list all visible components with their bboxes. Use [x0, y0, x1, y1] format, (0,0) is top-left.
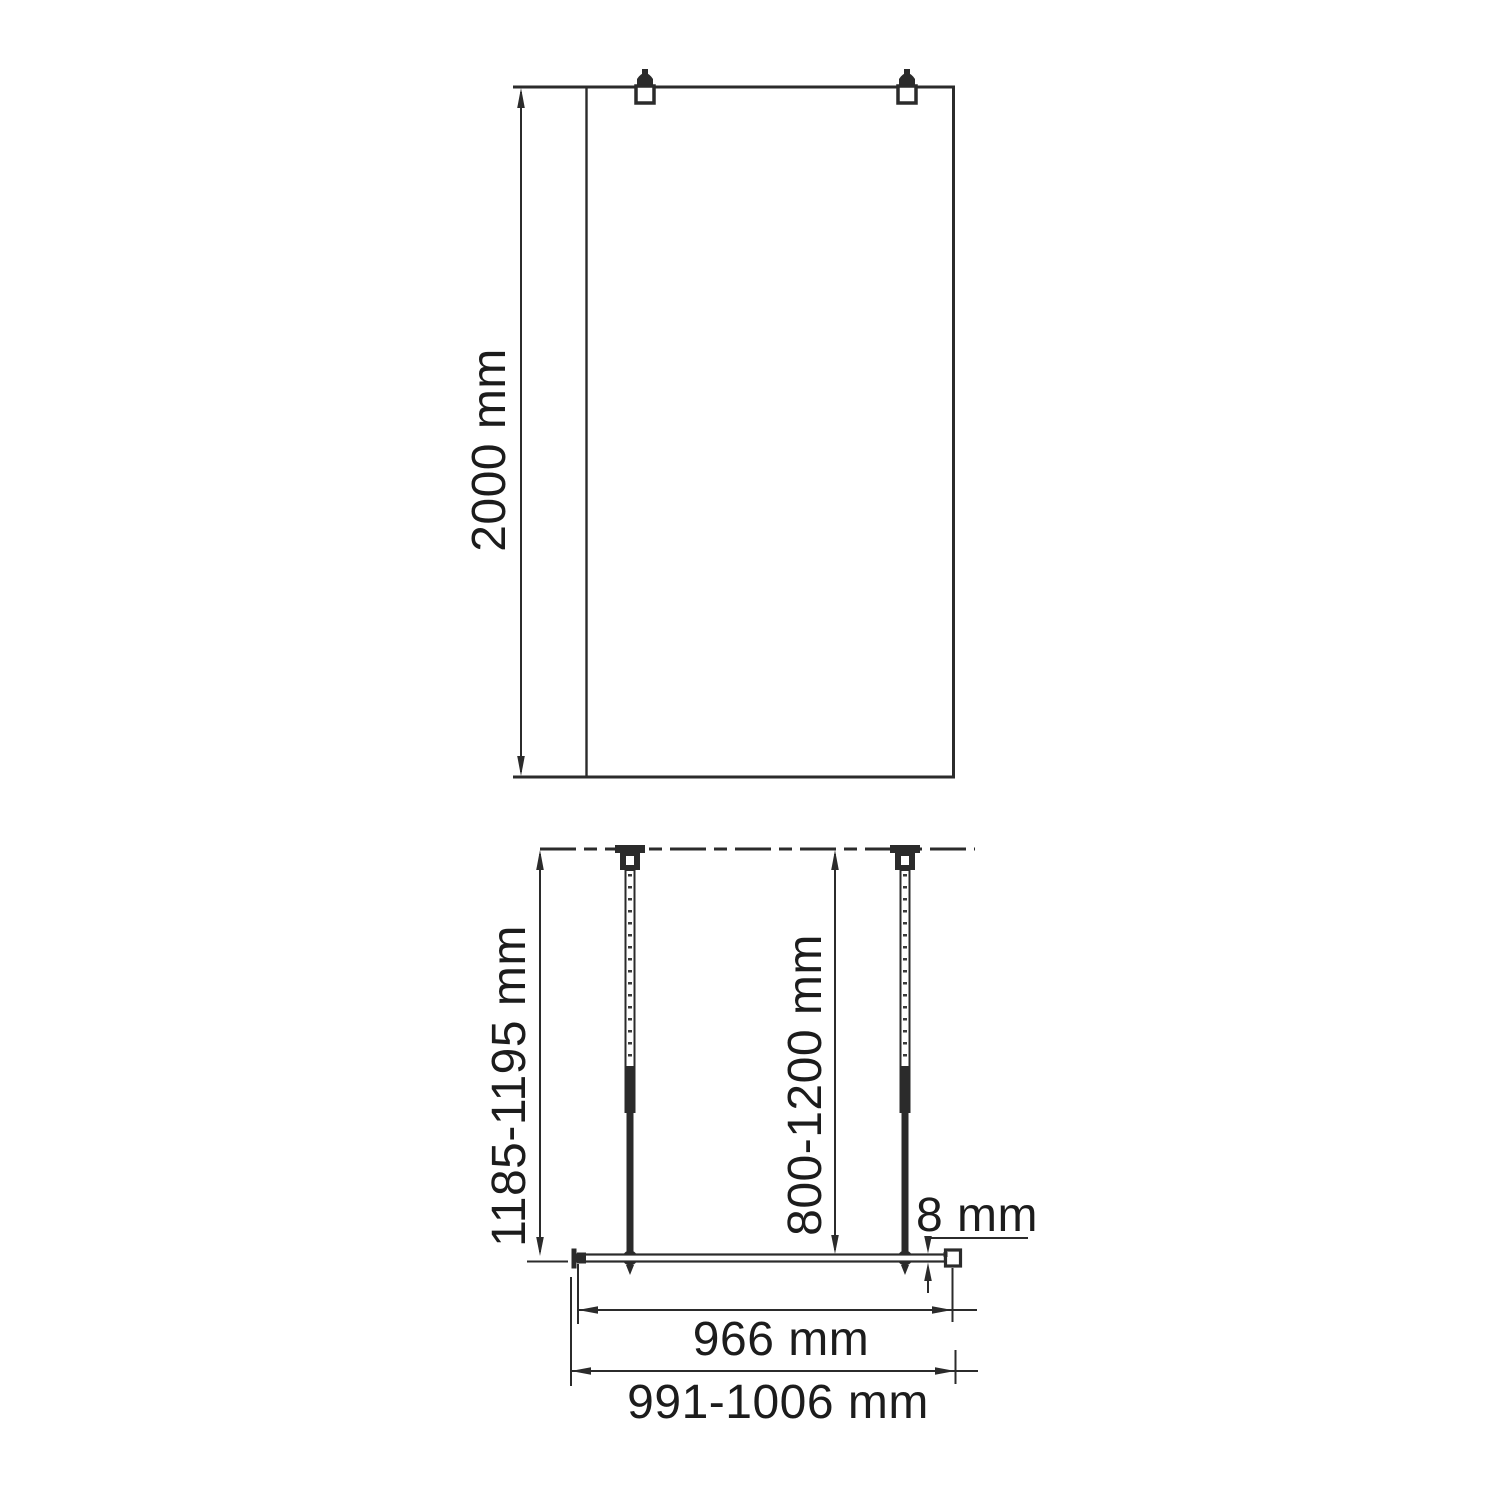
bar-mount-range-dimension: 800-1200 mm — [779, 850, 839, 1254]
bar-wall-flange — [615, 845, 645, 853]
technical-drawing-canvas: 2000 mm — [0, 0, 1500, 1500]
wall-profile-left — [572, 1249, 577, 1269]
dimension-arrow-down — [517, 756, 525, 776]
overall-width-label: 991-1006 mm — [627, 1376, 929, 1429]
bar-length-dimension: 1185-1195 mm — [483, 850, 568, 1262]
glass-clamp-left — [636, 69, 654, 103]
clamp-dome — [637, 73, 653, 86]
dimension-arrow-up — [831, 850, 839, 870]
dimension-arrow-right — [932, 1306, 952, 1314]
bar-wall-hole — [626, 856, 634, 865]
clamp-plate — [636, 86, 654, 103]
support-bar-left — [615, 845, 645, 1275]
dimension-arrow-left — [571, 1367, 591, 1375]
clamp-nub — [642, 69, 648, 74]
bar-sleeve — [900, 1066, 911, 1113]
dimension-arrow-down — [536, 1237, 544, 1256]
bar-connector-tip — [901, 1265, 909, 1275]
bar-rod — [627, 1113, 634, 1253]
bar-connector-tip — [626, 1265, 634, 1275]
front-height-label: 2000 mm — [463, 348, 516, 552]
bar-wall-flange — [890, 845, 920, 853]
glass-left-seal — [577, 1253, 586, 1264]
bar-wall-hole — [901, 856, 909, 865]
glass-right-seal — [944, 1252, 948, 1257]
overall-width-dimension: 991-1006 mm — [571, 1367, 978, 1429]
bar-length-label: 1185-1195 mm — [483, 925, 536, 1247]
glass-width-label: 966 mm — [693, 1313, 869, 1366]
wall-profile-right — [946, 1250, 961, 1266]
dimension-arrow-left — [578, 1306, 598, 1314]
glass-thickness-callout: 8 mm — [916, 1189, 1038, 1293]
shower-screen-dimension-diagram: 2000 mm — [0, 0, 1500, 1500]
glass-thickness-label: 8 mm — [916, 1189, 1038, 1242]
front-view: 2000 mm — [463, 69, 955, 777]
clamp-dome — [899, 73, 915, 86]
bar-mount-range-label: 800-1200 mm — [779, 934, 832, 1236]
dimension-arrow-down — [831, 1235, 839, 1254]
glass-width-dimension: 966 mm — [578, 1306, 977, 1366]
bar-rod — [902, 1113, 909, 1253]
dimension-arrow-up — [517, 88, 525, 108]
clamp-plate — [898, 86, 916, 103]
height-dimension: 2000 mm — [463, 88, 525, 776]
bar-sleeve — [625, 1066, 636, 1113]
dimension-arrow-up — [536, 850, 544, 870]
glass-panel-front — [513, 87, 955, 777]
glass-section — [577, 1255, 945, 1262]
plan-view: 1185-1195 mm 800-1200 mm 8 mm 9 — [483, 845, 1038, 1429]
clamp-nub — [904, 69, 910, 74]
glass-clamp-right — [898, 69, 916, 103]
dimension-arrow-right — [935, 1367, 955, 1375]
